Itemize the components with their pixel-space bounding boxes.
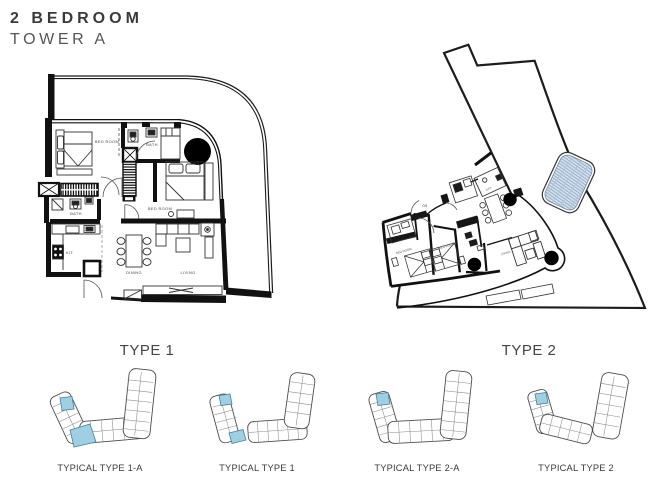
svg-text:LIFT: LIFT — [485, 186, 492, 192]
svg-text:TOWER A: TOWER A — [10, 31, 109, 48]
svg-text:TYPICAL TYPE 2-A: TYPICAL TYPE 2-A — [374, 463, 460, 473]
svg-text:KIT.: KIT. — [66, 250, 74, 255]
svg-text:LIVING: LIVING — [500, 250, 511, 257]
svg-text:TYPE 2: TYPE 2 — [502, 342, 557, 359]
svg-text:TYPICAL TYPE 1: TYPICAL TYPE 1 — [219, 463, 295, 473]
svg-text:BED ROOM: BED ROOM — [148, 206, 172, 211]
svg-text:BED ROOM: BED ROOM — [395, 247, 412, 255]
svg-text:TYPE 1: TYPE 1 — [120, 342, 175, 359]
svg-text:DINING: DINING — [126, 270, 142, 275]
svg-text:BED ROOM: BED ROOM — [95, 139, 119, 144]
svg-text:BATH: BATH — [146, 142, 158, 147]
svg-text:TYPICAL TYPE 2: TYPICAL TYPE 2 — [538, 463, 614, 473]
svg-text:BATH: BATH — [70, 211, 82, 216]
svg-text:LIVING: LIVING — [181, 270, 196, 275]
svg-text:2 BEDROOM: 2 BEDROOM — [10, 10, 143, 27]
svg-text:05: 05 — [422, 203, 428, 208]
svg-text:TYPICAL TYPE 1-A: TYPICAL TYPE 1-A — [57, 463, 143, 473]
svg-text:BED ROOM: BED ROOM — [438, 242, 455, 250]
